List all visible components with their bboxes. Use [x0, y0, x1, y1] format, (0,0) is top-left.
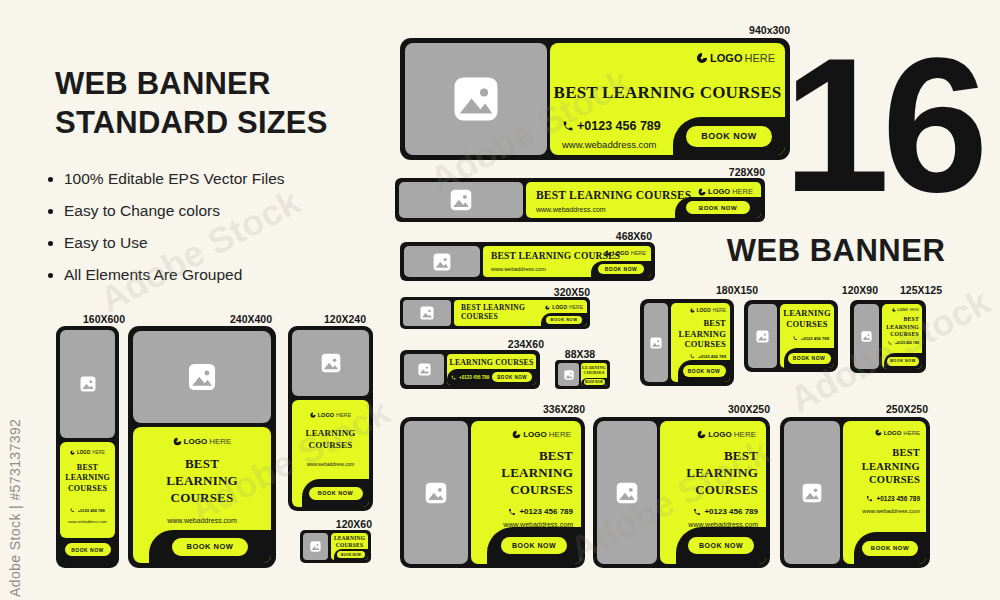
phone-icon: [693, 508, 701, 516]
banner-320x50: BEST LEARNING COURSES LOGOHERE BOOK NOW: [400, 297, 590, 329]
logo-icon: [605, 250, 611, 256]
banner-heading: LEARNING COURSES: [447, 358, 536, 367]
logo-icon: [697, 430, 706, 439]
image-placeholder-icon: [310, 541, 321, 552]
banner-heading: LEARNING COURSES: [780, 308, 834, 330]
heading-line: LEARNING: [501, 465, 573, 482]
image-placeholder: [404, 421, 468, 564]
image-placeholder: [399, 182, 523, 218]
cta-corner: BOOK NOW: [784, 348, 834, 368]
banner-300x250: LOGOHERE BEST LEARNING COURSES +0123 456…: [593, 417, 770, 568]
logo-icon: [173, 437, 182, 446]
image-placeholder: [60, 330, 115, 438]
phone-line: +0123 456 789: [562, 119, 661, 133]
image-placeholder: [784, 421, 840, 564]
phone-icon: [888, 341, 892, 345]
size-label-125x125: 125X125: [882, 284, 942, 296]
image-placeholder-icon: [418, 363, 431, 376]
phone-line: +0123 456 789: [793, 336, 829, 341]
image-placeholder-icon: [420, 306, 434, 320]
logo-placeholder: LOGOHERE: [545, 304, 583, 310]
phone-line: +0123 456 789: [866, 495, 920, 502]
banner-240x400: LOGOHERE BEST LEARNING COURSES www.webad…: [128, 326, 276, 568]
banner-heading: LEARNING COURSES: [292, 428, 369, 451]
phone-number: +0123 456 789: [577, 119, 661, 133]
book-now-button[interactable]: BOOK NOW: [501, 537, 567, 554]
banner-heading: BEST LEARNING COURSES: [550, 83, 785, 103]
image-placeholder: [403, 300, 451, 326]
logo-icon: [875, 429, 882, 436]
image-placeholder: [303, 533, 328, 560]
size-label-120x60: 120X60: [330, 518, 372, 530]
phone-line: +0123 456 789: [693, 507, 758, 516]
logo-text: LOGO: [884, 430, 902, 436]
banner-heading: BEST LEARNING COURSES: [886, 316, 919, 339]
size-label-180x150: 180X150: [696, 284, 758, 296]
image-placeholder-icon: [564, 370, 574, 380]
logo-text-light: HERE: [569, 304, 583, 310]
phone-icon: [451, 375, 456, 380]
banner-250x250: LOGOHERE BEST LEARNING COURSES +0123 456…: [780, 417, 930, 568]
logo-placeholder: LOGOHERE: [292, 412, 369, 418]
book-now-button[interactable]: BOOK NOW: [337, 551, 365, 558]
feature-list: 100% Editable EPS Vector Files Easy to C…: [48, 170, 285, 298]
logo-placeholder: LOGOHERE: [605, 250, 646, 256]
bullet-icon: [48, 209, 53, 214]
heading-line: BEST: [679, 318, 726, 329]
banner-940x300: LOGOHERE BEST LEARNING COURSES +0123 456…: [400, 38, 790, 160]
image-placeholder: [133, 331, 271, 423]
phone-line: +0123 456 789: [690, 354, 726, 359]
heading-line: COURSES: [292, 440, 369, 452]
banner-heading: BEST LEARNING COURSES: [133, 456, 271, 507]
heading-line: BEST: [501, 448, 573, 465]
size-label-728x90: 728X90: [712, 166, 765, 178]
size-label-300x250: 300X250: [720, 403, 770, 415]
image-placeholder-icon: [321, 353, 341, 373]
size-label-940x300: 940x300: [735, 24, 790, 36]
book-now-button[interactable]: BOOK NOW: [686, 126, 772, 147]
website-url: www.webaddress.com: [60, 519, 115, 524]
logo-text: LOGO: [523, 430, 547, 439]
logo-icon: [892, 308, 896, 312]
logo-text: LOGO: [77, 450, 90, 455]
size-label-234x60: 234X60: [492, 338, 544, 350]
cta-corner: BOOK NOW: [334, 549, 368, 560]
logo-icon: [70, 450, 75, 455]
banner-count-label: WEB BANNER: [720, 233, 952, 269]
list-item: All Elements Are Grouped: [48, 266, 285, 284]
heading-line: BEST: [133, 456, 271, 473]
banner-heading: BEST LEARNING COURSES: [501, 448, 573, 499]
banner-heading: LEARNING COURSES: [581, 365, 607, 376]
logo-icon: [310, 412, 316, 418]
logo-placeholder: LOGOHERE: [696, 52, 775, 64]
image-placeholder: [405, 43, 547, 155]
logo-text-light: HERE: [732, 187, 753, 196]
image-placeholder: [597, 421, 657, 564]
heading-line: LEARNING: [133, 473, 271, 490]
phone-icon: [508, 508, 516, 516]
phone-line: +0123 456 789: [888, 341, 919, 345]
cta-corner: BOOK NOW: [884, 353, 922, 369]
logo-text-light: HERE: [336, 412, 351, 418]
book-now-button[interactable]: BOOK NOW: [584, 379, 605, 385]
heading-line: COURSES: [862, 473, 920, 487]
image-placeholder-icon: [433, 253, 451, 271]
website-url: www.webaddress.com: [292, 462, 369, 467]
page-title-line2: STANDARD SIZES: [55, 103, 328, 142]
image-placeholder-icon: [650, 337, 662, 349]
phone-line: +0123 456 789: [508, 507, 573, 516]
logo-text-light: HERE: [903, 430, 920, 436]
bullet-icon: [48, 241, 53, 246]
size-label-250x250: 250X250: [876, 403, 928, 415]
logo-icon: [696, 52, 708, 64]
banner-336x280: LOGOHERE BEST LEARNING COURSES +0123 456…: [400, 417, 585, 568]
heading-line: COURSES: [886, 331, 919, 339]
logo-icon: [690, 308, 695, 313]
image-placeholder: [644, 303, 668, 382]
size-label-88x38: 88X38: [556, 348, 604, 360]
image-placeholder-icon: [861, 331, 872, 342]
website-url: www.webaddress.com: [133, 517, 271, 524]
phone-icon: [866, 495, 873, 502]
size-label-468x60: 468X60: [600, 230, 652, 242]
logo-text: LOGO: [697, 308, 711, 313]
logo-placeholder: LOGOHERE: [875, 429, 920, 436]
heading-line: BEST: [686, 448, 758, 465]
size-label-120x90: 120X90: [818, 284, 878, 296]
heading-line: COURSES: [60, 484, 115, 494]
heading-line: BEST: [60, 463, 115, 473]
logo-icon: [512, 430, 521, 439]
website-url: www.webaddress.com: [491, 266, 546, 272]
list-item-label: Easy to Change colors: [64, 202, 220, 220]
book-now-button[interactable]: BOOK NOW: [172, 538, 248, 556]
phone-icon: [562, 120, 574, 132]
logo-text: LOGO: [613, 250, 629, 256]
heading-line: LEARNING: [292, 428, 369, 440]
heading-line: BEST: [886, 316, 919, 324]
banner-heading: BEST LEARNING COURSES: [461, 303, 525, 322]
page-title: WEB BANNER STANDARD SIZES: [55, 64, 328, 143]
banner-heading: BEST LEARNING COURSES: [491, 251, 620, 261]
phone-line: +0123 456 789: [451, 375, 489, 380]
logo-text-light: HERE: [549, 430, 571, 439]
size-label-240x400: 240X400: [220, 313, 272, 325]
book-now-button[interactable]: BOOK NOW: [546, 316, 582, 324]
heading-line: LEARNING: [862, 460, 920, 474]
book-now-button[interactable]: BOOK NOW: [683, 365, 726, 377]
bullet-icon: [48, 273, 53, 278]
banner-468x60: BEST LEARNING COURSES www.webaddress.com…: [400, 242, 655, 281]
logo-text-light: HERE: [910, 308, 919, 312]
image-placeholder-icon: [453, 76, 499, 122]
image-placeholder-icon: [80, 376, 96, 392]
banner-heading: LEARNING COURSES: [331, 535, 368, 549]
banner-728x90: BEST LEARNING COURSES www.webaddress.com…: [395, 178, 765, 222]
cta-corner: BOOK NOW: [854, 532, 926, 564]
banner-heading: BEST LEARNING COURSES: [679, 318, 726, 350]
image-placeholder-icon: [802, 483, 822, 503]
book-now-button[interactable]: BOOK NOW: [598, 264, 644, 274]
cta-corner: BOOK NOW: [581, 378, 607, 386]
logo-text: LOGO: [898, 308, 908, 312]
book-now-button[interactable]: BOOK NOW: [887, 357, 919, 366]
logo-placeholder: LOGOHERE: [892, 308, 919, 312]
list-item: 100% Editable EPS Vector Files: [48, 170, 285, 188]
banner-120x60: LEARNING COURSES BOOK NOW: [300, 530, 371, 563]
cta-corner: BOOK NOW: [149, 530, 271, 563]
size-label-160x600: 160X600: [78, 313, 130, 325]
banner-160x600: LOGOHERE BEST LEARNING COURSES +0123 456…: [56, 326, 119, 568]
banner-120x90: LEARNING COURSES +0123 456 789 BOOK NOW: [744, 300, 838, 372]
logo-placeholder: LOGOHERE: [512, 430, 571, 439]
cta-corner: BOOK NOW: [676, 527, 766, 564]
list-item-label: Easy to Use: [64, 234, 148, 252]
banner-234x60: LEARNING COURSES +0123 456 789 BOOK NOW: [400, 350, 540, 389]
cta-corner: BOOK NOW: [678, 360, 730, 382]
book-now-button[interactable]: BOOK NOW: [862, 541, 918, 556]
logo-text: LOGO: [184, 437, 208, 446]
banner-heading: BEST LEARNING COURSES: [862, 446, 920, 487]
image-placeholder: [292, 330, 369, 396]
banner-125x125: LOGOHERE BEST LEARNING COURSES +0123 456…: [850, 300, 926, 373]
poster-canvas: WEB BANNER STANDARD SIZES 100% Editable …: [0, 0, 1000, 600]
logo-placeholder: LOGOHERE: [697, 430, 756, 439]
image-placeholder-icon: [756, 330, 769, 343]
heading-line: COURSES: [780, 319, 834, 330]
banner-count: 16: [783, 34, 955, 216]
phone-number: +0123 456 789: [519, 507, 573, 516]
book-now-button[interactable]: BOOK NOW: [788, 353, 831, 364]
phone-number: +0123 456 789: [698, 354, 726, 359]
list-item-label: All Elements Are Grouped: [64, 266, 242, 284]
phone-number: +0123 456 789: [704, 507, 758, 516]
logo-placeholder: LOGOHERE: [60, 450, 115, 455]
image-placeholder-icon: [450, 189, 472, 211]
phone-number: +0123 456 789: [876, 495, 920, 502]
heading-line: LEARNING: [686, 465, 758, 482]
page-title-line1: WEB BANNER: [55, 64, 328, 103]
phone-number: +0123 456 789: [459, 375, 489, 380]
logo-placeholder: LOGOHERE: [690, 308, 726, 313]
heading-line: LEARNING: [60, 473, 115, 483]
image-placeholder: [854, 304, 879, 369]
heading-line: COURSES: [133, 490, 271, 507]
bullet-icon: [48, 177, 53, 182]
banner-heading: BEST LEARNING COURSES: [686, 448, 758, 499]
phone-number: +0123 456 789: [78, 508, 105, 513]
logo-text: LOGO: [708, 430, 732, 439]
stock-watermark-side: Adobe Stock | #573137392: [7, 419, 23, 597]
logo-text-light: HERE: [92, 450, 105, 455]
cta-strip: +0123 456 789 BOOK NOW: [447, 369, 536, 385]
book-now-button[interactable]: BOOK NOW: [492, 372, 532, 382]
list-item: Easy to Use: [48, 234, 285, 252]
logo-text: LOGO: [552, 304, 567, 310]
phone-number: +0123 456 789: [895, 341, 919, 345]
heading-line: COURSES: [501, 482, 573, 499]
banner-180x150: LOGOHERE BEST LEARNING COURSES +0123 456…: [640, 299, 734, 386]
phone-icon: [793, 336, 798, 341]
list-item: Easy to Change colors: [48, 202, 285, 220]
size-label-120x240: 120X240: [316, 313, 366, 325]
cta-corner: BOOK NOW: [673, 117, 785, 155]
logo-text-light: HERE: [744, 52, 775, 64]
image-placeholder: [404, 354, 444, 385]
heading-line: LEARNING: [780, 308, 834, 319]
cta-corner: BOOK NOW: [541, 313, 587, 326]
logo-text: LOGO: [710, 52, 742, 64]
image-placeholder-icon: [425, 482, 447, 504]
book-now-button[interactable]: BOOK NOW: [309, 487, 363, 500]
book-now-button[interactable]: BOOK NOW: [65, 543, 111, 556]
image-placeholder: [404, 246, 480, 277]
cta-corner: BOOK NOW: [487, 527, 581, 564]
heading-line: LEARNING: [331, 535, 368, 542]
book-now-button[interactable]: BOOK NOW: [686, 201, 750, 214]
logo-icon: [545, 305, 550, 310]
banner-120x240: LOGOHERE LEARNING COURSES www.webaddress…: [288, 326, 373, 511]
heading-line: BEST LEARNING: [461, 303, 525, 312]
heading-line: COURSES: [686, 482, 758, 499]
heading-line: LEARNING: [886, 324, 919, 332]
heading-line: COURSES: [461, 312, 525, 321]
image-placeholder-icon: [188, 363, 216, 391]
list-item-label: 100% Editable EPS Vector Files: [64, 170, 285, 188]
cta-corner: BOOK NOW: [302, 479, 369, 507]
phone-line: +0123 456 789: [60, 508, 115, 513]
logo-text-light: HERE: [209, 437, 231, 446]
logo-placeholder: LOGOHERE: [133, 437, 271, 446]
phone-icon: [690, 354, 695, 359]
logo-text-light: HERE: [734, 430, 756, 439]
logo-icon: [698, 188, 706, 196]
phone-icon: [70, 508, 75, 513]
image-placeholder-icon: [616, 482, 638, 504]
image-placeholder: [748, 304, 777, 368]
banner-heading: BEST LEARNING COURSES: [536, 189, 691, 201]
logo-placeholder: LOGOHERE: [698, 187, 753, 196]
website-url: www.webaddress.com: [536, 206, 606, 213]
logo-text-light: HERE: [713, 308, 726, 313]
cta-corner: BOOK NOW: [675, 197, 761, 218]
size-label-336x280: 336X280: [535, 403, 585, 415]
logo-text-light: HERE: [631, 250, 646, 256]
website-url: www.webaddress.com: [562, 139, 657, 150]
cta-corner: BOOK NOW: [591, 261, 651, 277]
logo-text: LOGO: [708, 187, 730, 196]
website-url: www.webaddress.com: [862, 508, 920, 514]
heading-line: BEST: [862, 446, 920, 460]
heading-line: COURSES: [581, 370, 607, 375]
logo-text: LOGO: [318, 412, 334, 418]
banner-heading: BEST LEARNING COURSES: [60, 463, 115, 494]
heading-line: LEARNING: [679, 329, 726, 340]
phone-number: +0123 456 789: [801, 336, 829, 341]
book-now-button[interactable]: BOOK NOW: [688, 537, 754, 554]
image-placeholder: [558, 363, 579, 386]
heading-line: COURSES: [679, 339, 726, 350]
banner-88x38: LEARNING COURSES BOOK NOW: [555, 360, 610, 389]
